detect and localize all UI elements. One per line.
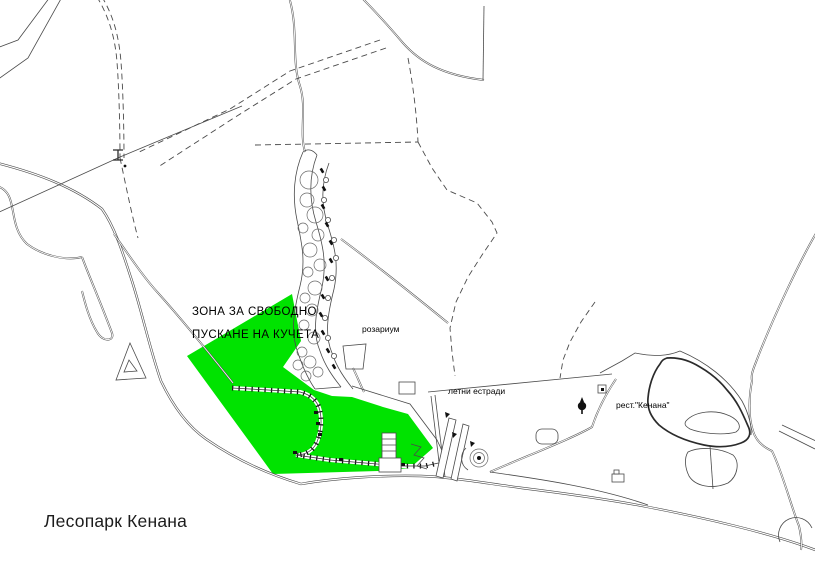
stage-bar-2 xyxy=(451,424,469,481)
map-title: Лесопарк Кенана xyxy=(44,511,187,532)
dog-zone-label-line2: ПУСКАНЕ НА КУЧЕТА xyxy=(192,329,319,341)
map-drawing xyxy=(0,0,815,565)
pond-island xyxy=(685,412,739,434)
rosarium-plaza xyxy=(343,344,366,369)
dog-zone-label-line1: ЗОНА ЗА СВОБОДНО xyxy=(192,306,317,318)
monument-tree-icon xyxy=(578,397,586,414)
amphitheater xyxy=(462,448,488,470)
building xyxy=(379,458,401,472)
rosarium xyxy=(293,150,366,389)
stairs-structure xyxy=(382,433,396,459)
small-plot xyxy=(399,382,415,394)
restaurant-label: рест."Кенана" xyxy=(616,400,670,410)
stage-pavilion xyxy=(536,429,558,444)
rosarium-label: розариум xyxy=(362,324,399,334)
park-map: ЗОНА ЗА СВОБОДНО ПУСКАНЕ НА КУЧЕТА розар… xyxy=(0,0,815,565)
hill-triangle-icon xyxy=(116,343,146,380)
dashed-paths xyxy=(97,0,595,378)
hut-icon xyxy=(612,470,624,482)
summer-stages-label: летни естради xyxy=(448,386,505,396)
info-square-icon xyxy=(598,385,606,393)
rosarium-flower-beds xyxy=(293,171,326,381)
